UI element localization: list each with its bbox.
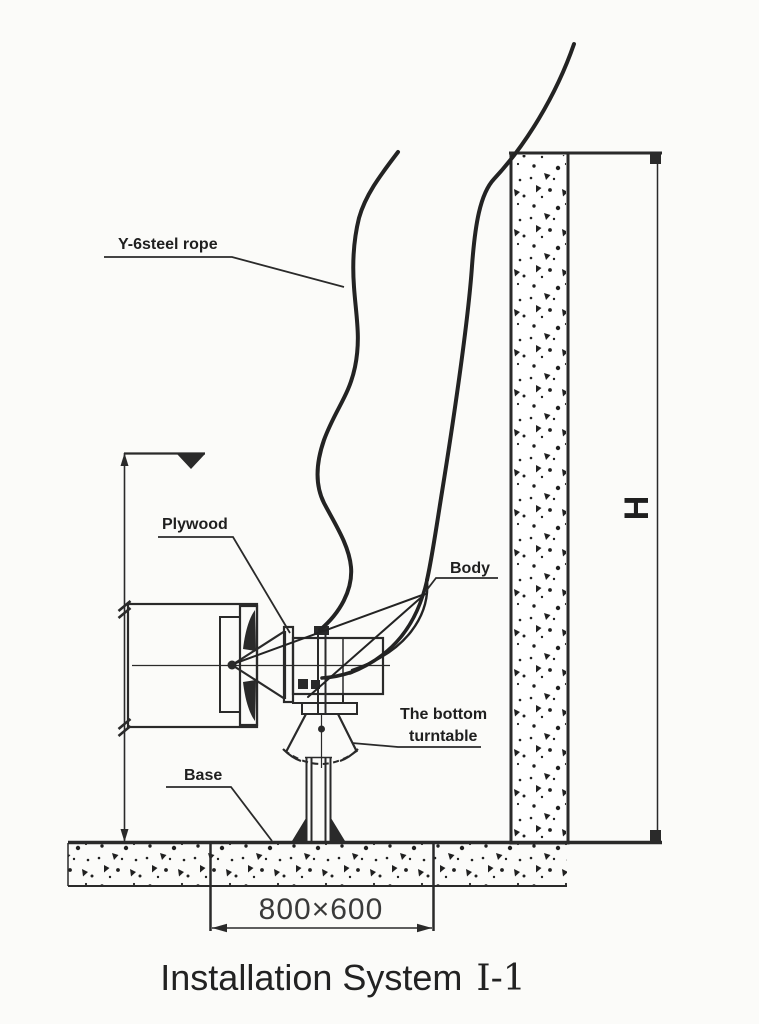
- horn-apex-pivot: [228, 661, 237, 670]
- h-dimension-bottom-tick: [650, 830, 661, 841]
- installation-diagram-page: H 800×600: [0, 0, 759, 1024]
- callouts: Y-6steel rope Plywood Body The bottom tu…: [104, 236, 498, 841]
- gusset-top: [243, 610, 256, 651]
- gusset-bottom: [243, 680, 256, 721]
- pedestal-foot-left: [292, 818, 306, 841]
- callout-steel-rope: Y-6steel rope: [104, 236, 344, 287]
- leader-body: [426, 578, 498, 591]
- pedestal: [292, 757, 345, 841]
- label-base: Base: [184, 767, 222, 784]
- label-turntable-line2: turntable: [409, 728, 478, 745]
- wall-concrete-hatch: [513, 155, 566, 841]
- label-foundation-size: 800×600: [259, 893, 384, 926]
- bottom-turntable: [283, 714, 358, 768]
- label-body: Body: [450, 560, 490, 577]
- level-marker-flag: [177, 454, 205, 469]
- leader-base: [166, 787, 272, 841]
- callout-turntable: The bottom turntable: [352, 706, 487, 747]
- pedestal-foot-right: [331, 818, 345, 841]
- machine: [128, 604, 390, 841]
- wall-height-dimension: H: [618, 153, 661, 841]
- leader-steel-rope: [104, 257, 344, 287]
- leader-plywood: [158, 537, 290, 633]
- diagram-title-main: Installation System: [160, 957, 462, 998]
- steel-rope-left: [318, 152, 398, 630]
- turntable-rim-solid: [283, 749, 358, 761]
- diagram-title-numeral: Ⅰ-1: [476, 958, 525, 999]
- dimension-arrow-up: [121, 453, 129, 466]
- bolt-left: [298, 679, 308, 689]
- ground-concrete-hatch: [68, 844, 567, 885]
- diagram-title: Installation SystemⅠ-1: [160, 957, 525, 999]
- dimension-arrow-left: [212, 924, 227, 932]
- callout-base: Base: [166, 767, 272, 841]
- feed-horn: [228, 627, 294, 702]
- turntable-pivot: [318, 726, 325, 733]
- callout-body: Body: [426, 560, 498, 591]
- installation-diagram: H 800×600: [0, 0, 759, 1024]
- label-steel-rope: Y-6steel rope: [118, 236, 218, 253]
- label-wall-height: H: [618, 496, 656, 521]
- dimension-arrow-right: [417, 924, 432, 932]
- label-plywood: Plywood: [162, 516, 228, 533]
- h-dimension-top-tick: [650, 153, 661, 164]
- label-turntable-line1: The bottom: [400, 706, 487, 723]
- dimension-arrow-down: [121, 829, 129, 842]
- sling-to-horn: [236, 594, 425, 663]
- turntable-top-plate: [302, 703, 357, 714]
- ground: [68, 843, 662, 887]
- callout-plywood: Plywood: [158, 516, 290, 633]
